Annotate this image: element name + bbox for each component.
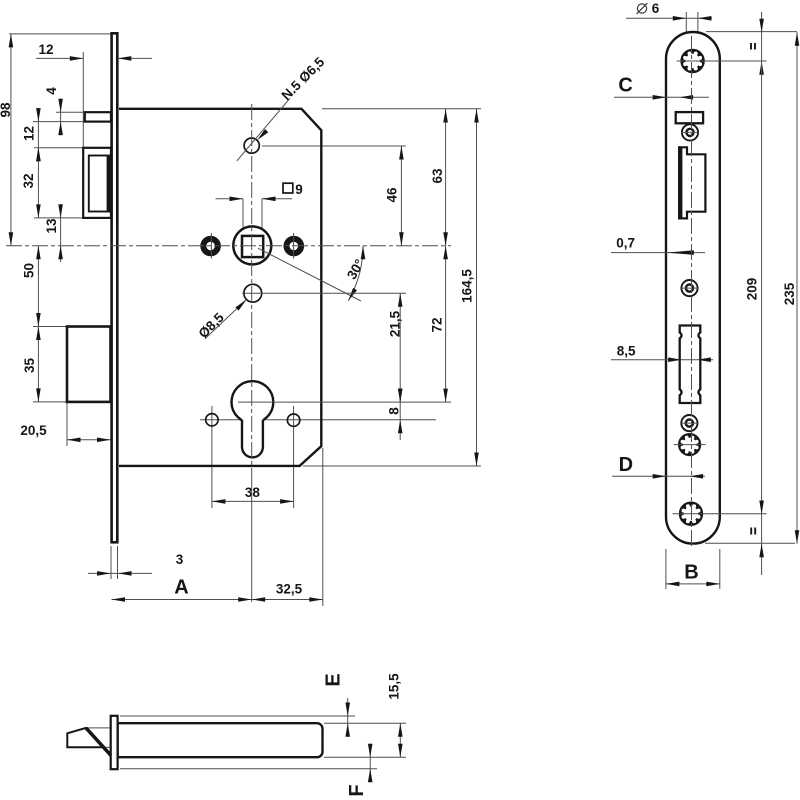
- svg-text:209: 209: [745, 278, 760, 301]
- svg-text:98: 98: [0, 102, 13, 118]
- svg-text:13: 13: [44, 218, 59, 234]
- svg-text:46: 46: [385, 187, 400, 203]
- svg-text:21,5: 21,5: [388, 310, 403, 337]
- svg-text:38: 38: [245, 485, 261, 500]
- svg-text:63: 63: [430, 168, 445, 184]
- svg-text:6: 6: [652, 1, 660, 16]
- svg-text:12: 12: [38, 42, 53, 57]
- svg-text:8: 8: [387, 407, 402, 415]
- svg-text:4: 4: [44, 87, 59, 95]
- svg-text:D: D: [619, 454, 633, 476]
- svg-text:9: 9: [295, 182, 303, 197]
- svg-text:20,5: 20,5: [20, 423, 47, 438]
- svg-text:164,5: 164,5: [460, 269, 475, 303]
- svg-text:0,7: 0,7: [616, 236, 635, 251]
- svg-text:32,5: 32,5: [276, 582, 303, 597]
- svg-text:72: 72: [430, 317, 445, 332]
- svg-text:Ø8,5: Ø8,5: [196, 309, 228, 341]
- svg-text:35: 35: [22, 358, 37, 374]
- svg-text:15,5: 15,5: [387, 673, 402, 700]
- svg-text:32: 32: [21, 173, 36, 188]
- svg-text:8,5: 8,5: [617, 344, 636, 359]
- svg-text:A: A: [174, 577, 188, 599]
- svg-text:3: 3: [176, 552, 184, 567]
- svg-text:N.5 Ø6,5: N.5 Ø6,5: [279, 54, 328, 103]
- svg-text:235: 235: [782, 282, 797, 305]
- svg-text:12: 12: [22, 126, 37, 141]
- svg-text:B: B: [684, 562, 698, 584]
- svg-text:30°: 30°: [344, 257, 367, 282]
- svg-text:F: F: [346, 784, 368, 796]
- svg-text:C: C: [618, 75, 632, 97]
- svg-text:E: E: [323, 673, 345, 686]
- svg-text:50: 50: [22, 263, 37, 278]
